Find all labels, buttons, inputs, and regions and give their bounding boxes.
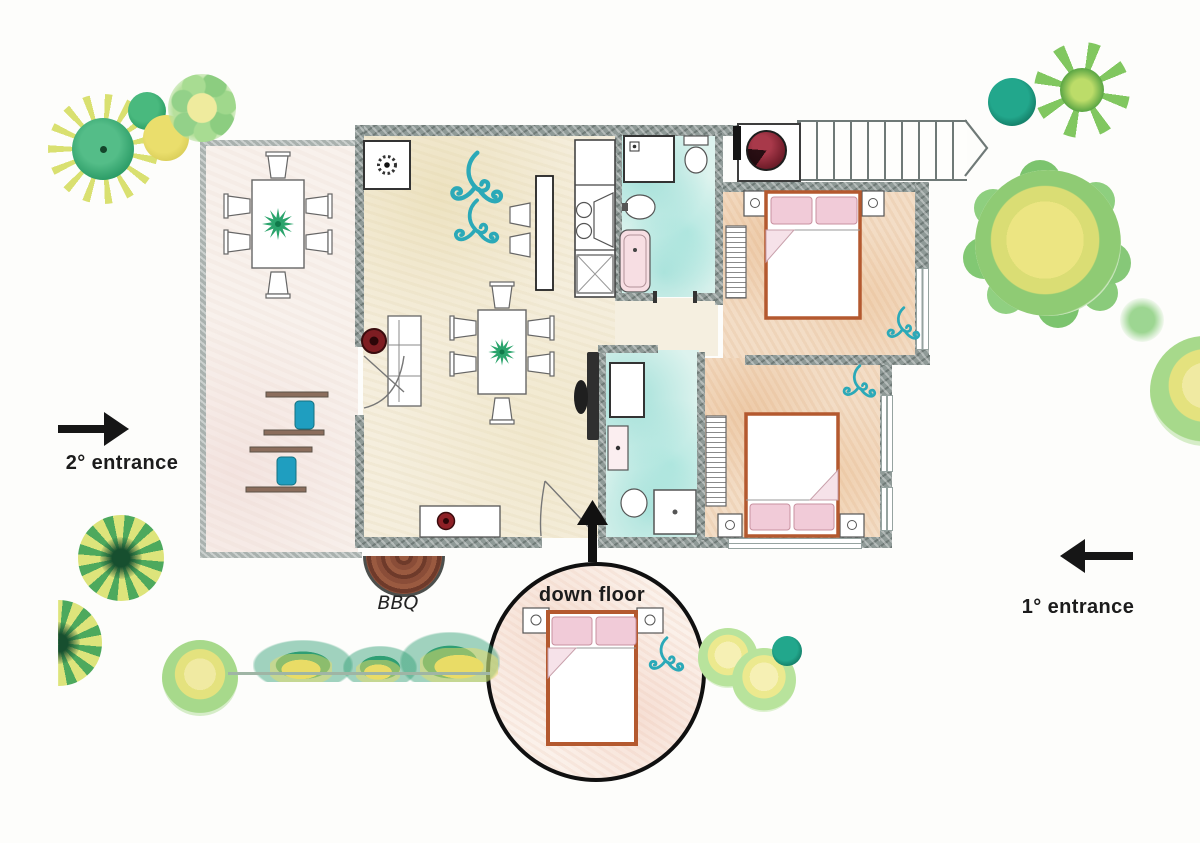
tv-speaker <box>574 380 588 414</box>
floor-plan-canvas: 2° entrance 1° entrance BBQ down floor <box>0 0 1200 843</box>
toilet-tank <box>684 136 708 145</box>
entrance-2-arrow-head <box>104 412 129 446</box>
entrance-2-arrow <box>58 425 106 433</box>
utility-fan-unit <box>364 141 410 189</box>
bedroom-2-furniture <box>706 366 875 537</box>
chair <box>490 398 514 424</box>
kitchen-unit <box>575 140 615 297</box>
pillow <box>596 617 636 645</box>
entrance-2-label: 2° entrance <box>57 452 187 475</box>
pillow <box>816 197 857 224</box>
chair <box>224 194 250 218</box>
toilet-bowl <box>685 147 707 173</box>
down-floor-bed <box>523 608 683 744</box>
chair <box>528 316 554 340</box>
tv-unit <box>587 352 599 440</box>
stool <box>510 233 530 257</box>
entrance-1-arrow <box>1085 552 1133 560</box>
ac-swirl-icon <box>650 638 682 670</box>
wardrobe <box>726 226 746 298</box>
bbq-label: BBQ <box>358 592 438 614</box>
chair <box>528 352 554 376</box>
pillow <box>750 504 790 530</box>
drainer <box>594 193 613 247</box>
bathroom-2-fixtures <box>608 363 696 534</box>
shower-glass <box>610 363 644 417</box>
breakfast-bar <box>510 176 553 290</box>
furniture-layer <box>0 0 1200 843</box>
sofa <box>388 316 421 406</box>
sun-loungers <box>246 392 328 492</box>
chair <box>450 316 476 340</box>
entrance-1-arrow-head <box>1060 539 1085 573</box>
chair <box>266 272 290 298</box>
pillow <box>794 504 834 530</box>
chair <box>306 230 332 254</box>
ac-swirl-icon <box>844 366 875 397</box>
chair <box>306 194 332 218</box>
pillow <box>552 617 592 645</box>
down-floor-arrow <box>577 500 608 562</box>
wardrobe <box>706 416 726 506</box>
stool <box>510 203 530 227</box>
sink-bowl <box>577 203 592 218</box>
chair <box>450 352 476 376</box>
down-floor-label: down floor <box>517 584 667 607</box>
sink-bowl <box>577 224 592 239</box>
stairs-direction-arrow <box>965 120 987 176</box>
bathroom-1-fixtures <box>620 136 708 303</box>
entrance-1-label: 1° entrance <box>1013 596 1143 619</box>
bedroom-1-furniture <box>726 191 919 338</box>
ac-swirl-icon <box>452 153 501 242</box>
pillow <box>771 197 812 224</box>
chair <box>490 282 514 308</box>
washbasin <box>625 195 655 219</box>
console-table <box>420 506 500 537</box>
indoor-dining-set <box>450 282 554 424</box>
chair <box>266 152 290 178</box>
ac-swirl-icon <box>888 308 919 339</box>
terrace-dining-set <box>224 152 332 298</box>
chair <box>224 230 250 254</box>
toilet-bowl <box>621 489 647 517</box>
